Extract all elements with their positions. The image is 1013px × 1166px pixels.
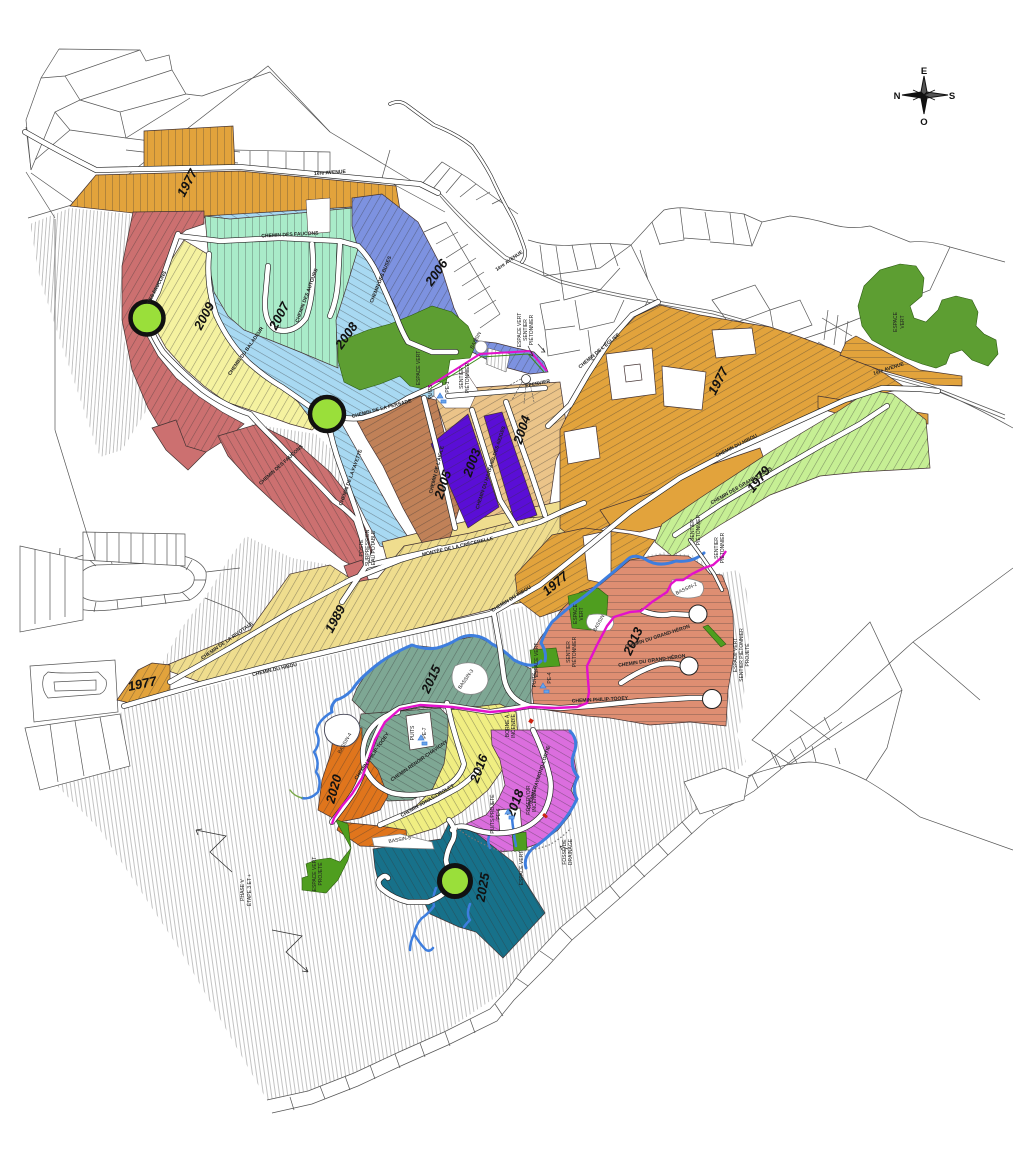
svg-text:PUITS: PUITS — [410, 725, 416, 740]
svg-text:PROJETÉ: PROJETÉ — [744, 643, 751, 667]
svg-text:BORNE À: BORNE À — [504, 714, 511, 737]
svg-text:ESPACE VERT: ESPACE VERT — [519, 851, 525, 886]
svg-text:VERT: VERT — [900, 315, 906, 328]
svg-text:EAU POTABLE: EAU POTABLE — [371, 530, 377, 565]
svg-text:E: E — [921, 66, 927, 77]
svg-text:PIÉTONNIER: PIÉTONNIER — [571, 636, 578, 667]
svg-text:PE-1: PE-1 — [445, 381, 451, 392]
svg-text:PIÉTONNIER: PIÉTONNIER — [719, 532, 726, 563]
svg-text:PIÉTONNIER: PIÉTONNIER — [528, 314, 535, 345]
svg-text:PROJETÉ: PROJETÉ — [317, 862, 324, 886]
svg-text:RÉSERVOIR: RÉSERVOIR — [525, 785, 532, 815]
svg-text:VERT: VERT — [579, 607, 585, 620]
svg-text:ÉTAPE 3 ET +: ÉTAPE 3 ET + — [246, 874, 253, 906]
svg-text:INCENDIE: INCENDIE — [511, 713, 517, 738]
svg-text:N: N — [894, 91, 901, 102]
svg-text:ESPACE: ESPACE — [893, 311, 899, 332]
svg-text:FOSSÉ DE: FOSSÉ DE — [561, 839, 568, 865]
svg-text:SENTIER PIÉTONNIER: SENTIER PIÉTONNIER — [738, 628, 745, 682]
svg-text:PE-7: PE-7 — [422, 727, 428, 738]
svg-text:ESPACE VERT: ESPACE VERT — [416, 351, 422, 386]
svg-text:O: O — [920, 117, 927, 128]
svg-text:PUITS: PUITS — [428, 384, 434, 399]
svg-text:PIÉTONNIER: PIÉTONNIER — [464, 362, 471, 393]
svg-text:DRAINAGE: DRAINAGE — [568, 838, 574, 865]
svg-text:PE-4: PE-4 — [547, 672, 553, 683]
svg-text:PE-6: PE-6 — [496, 808, 502, 819]
svg-text:INCENDIE: INCENDIE — [532, 787, 538, 812]
svg-text:PIÉTONNIER: PIÉTONNIER — [695, 514, 702, 545]
svg-text:PUITS PROJETÉ: PUITS PROJETÉ — [489, 794, 496, 834]
svg-text:PHASE V: PHASE V — [240, 879, 246, 901]
svg-text:ESPACE VERT: ESPACE VERT — [534, 643, 540, 678]
svg-text:PUITS: PUITS — [532, 672, 538, 687]
svg-text:S: S — [949, 91, 955, 102]
